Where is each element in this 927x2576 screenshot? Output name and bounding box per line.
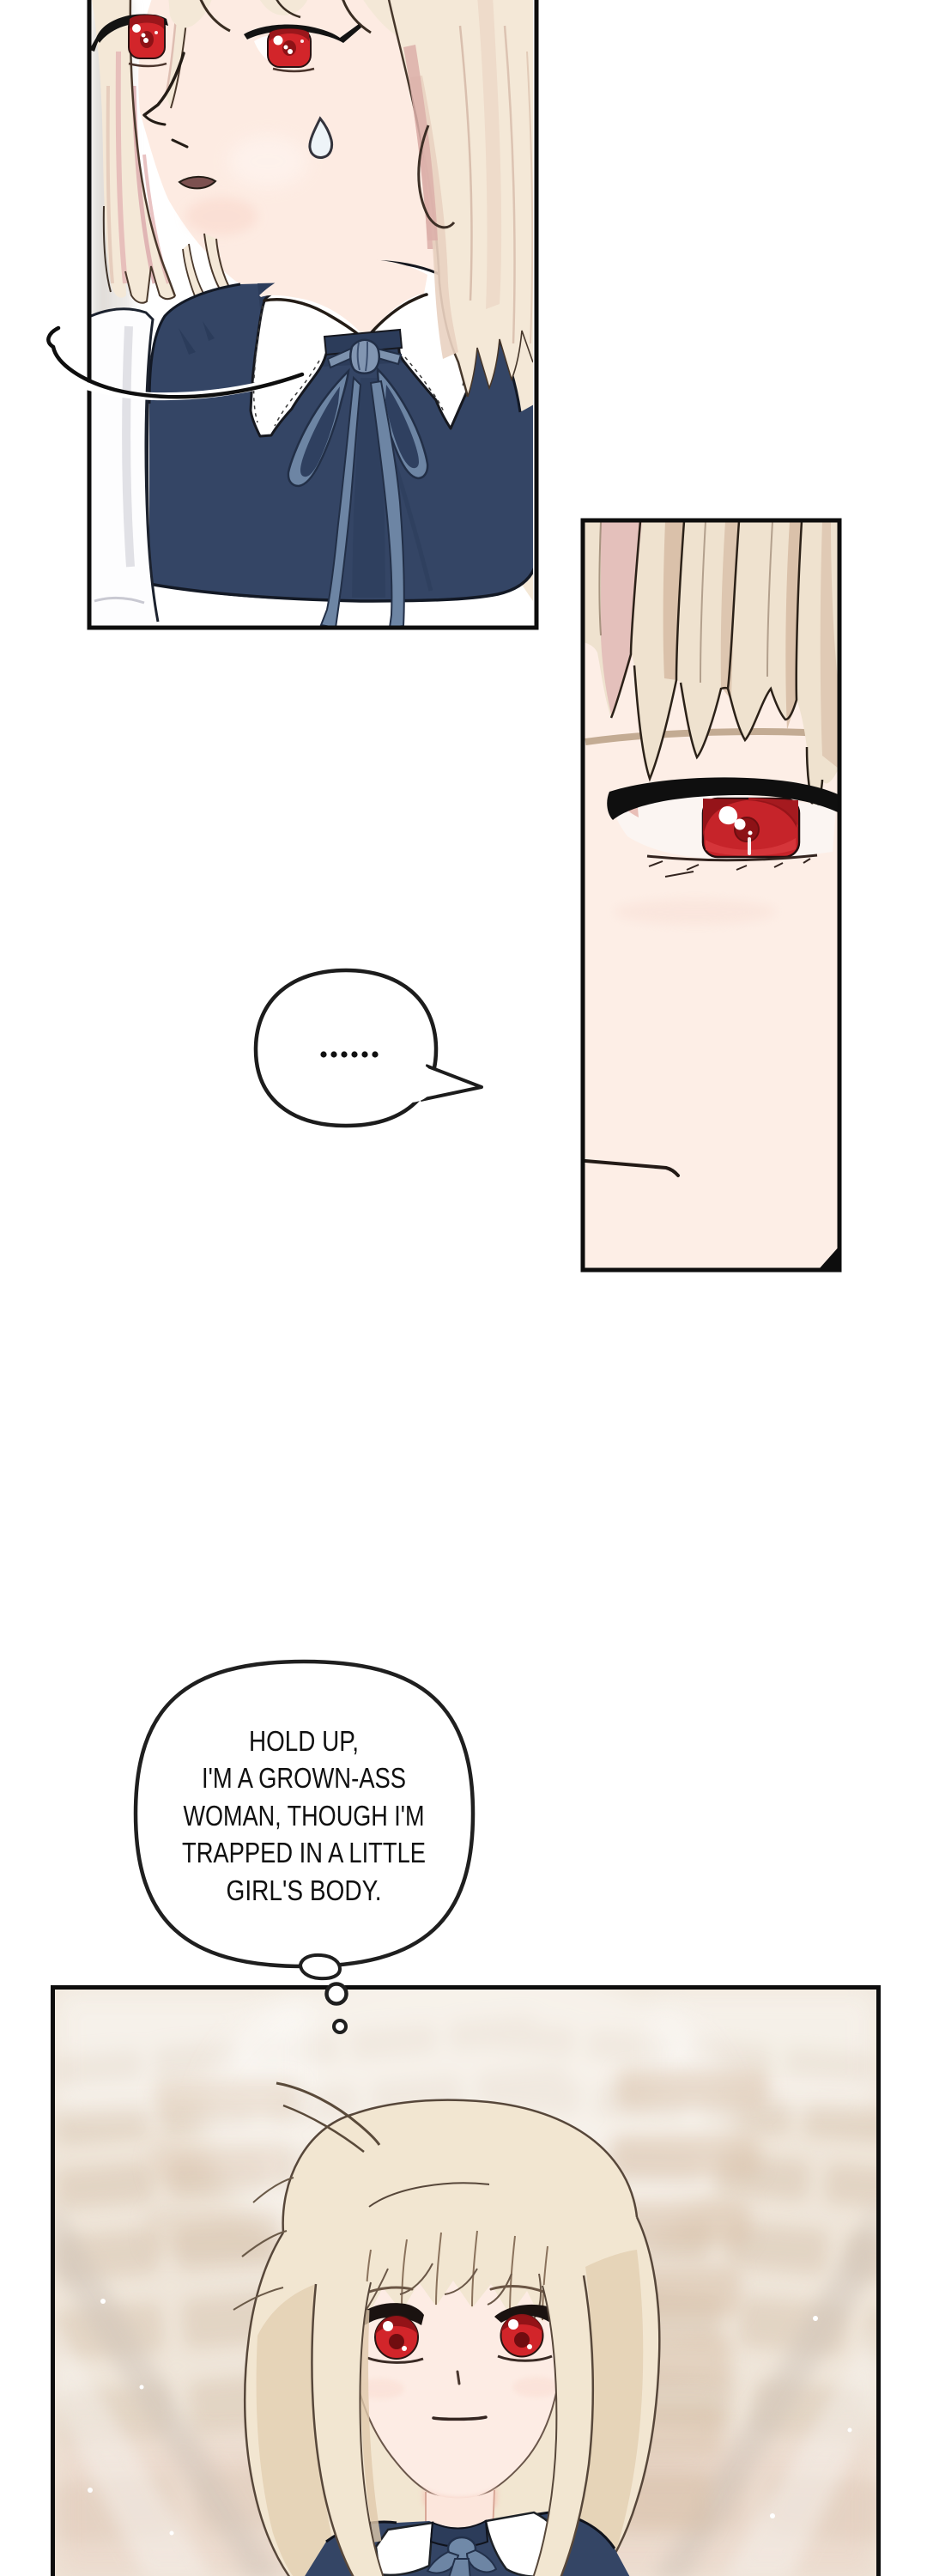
- svg-text:GIRL'S BODY.: GIRL'S BODY.: [227, 1874, 382, 1906]
- svg-text:HOLD UP,: HOLD UP,: [249, 1725, 359, 1757]
- svg-text:TRAPPED IN A LITTLE: TRAPPED IN A LITTLE: [182, 1837, 426, 1868]
- svg-text:WOMAN, THOUGH I'M: WOMAN, THOUGH I'M: [184, 1800, 425, 1832]
- svg-text:I'M A GROWN-ASS: I'M A GROWN-ASS: [202, 1762, 406, 1794]
